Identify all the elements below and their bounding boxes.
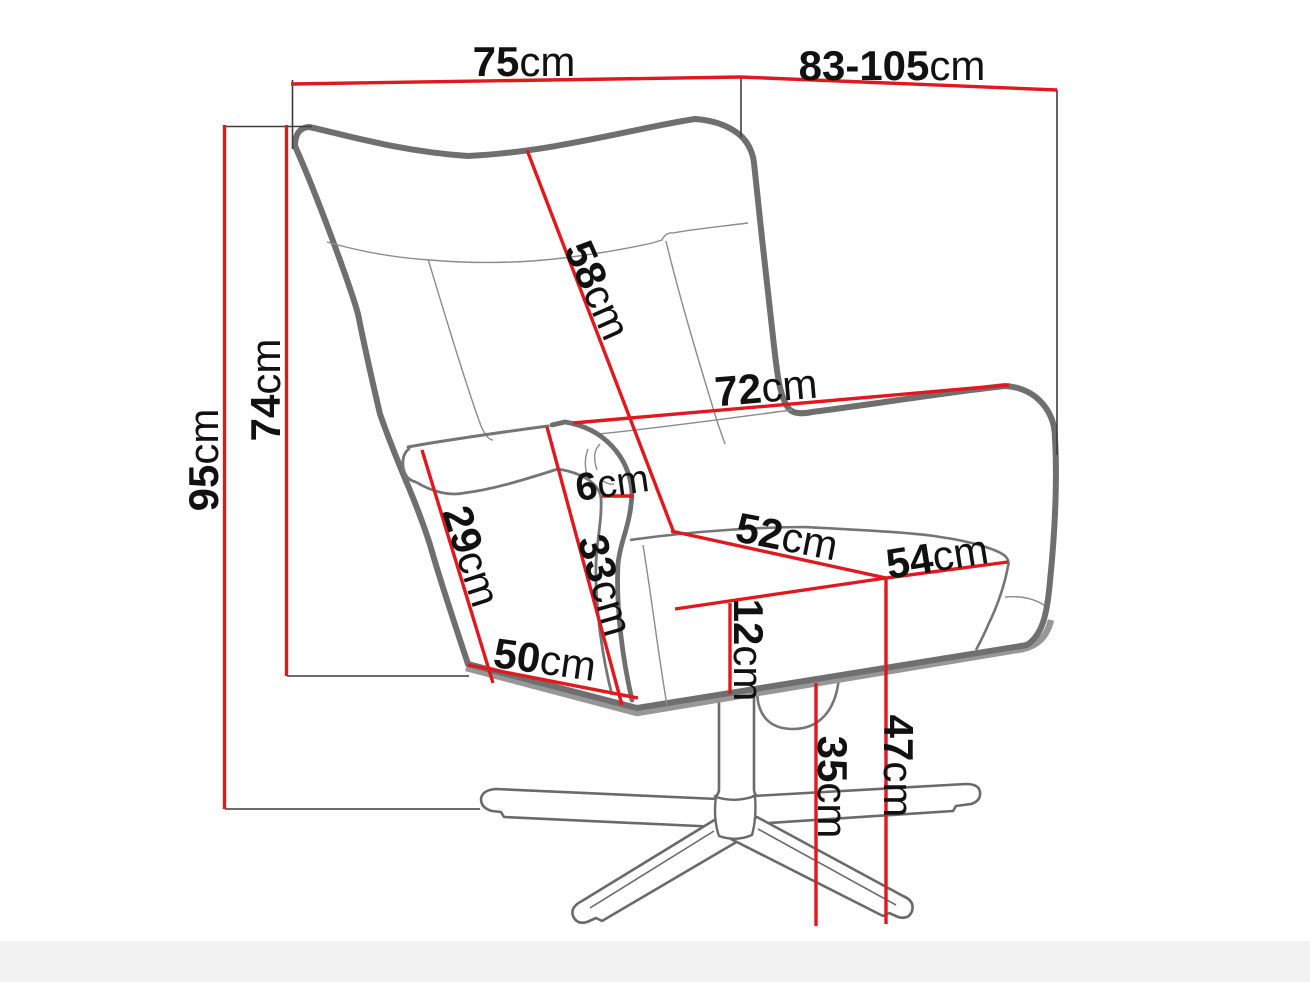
svg-text:75cm: 75cm [473, 38, 576, 85]
svg-text:12cm: 12cm [725, 599, 772, 702]
svg-text:72cm: 72cm [713, 360, 819, 416]
svg-text:47cm: 47cm [875, 715, 922, 818]
svg-text:83-105cm: 83-105cm [799, 42, 986, 89]
svg-text:35cm: 35cm [809, 736, 856, 839]
svg-text:95cm: 95cm [180, 409, 227, 512]
svg-text:74cm: 74cm [242, 339, 289, 442]
